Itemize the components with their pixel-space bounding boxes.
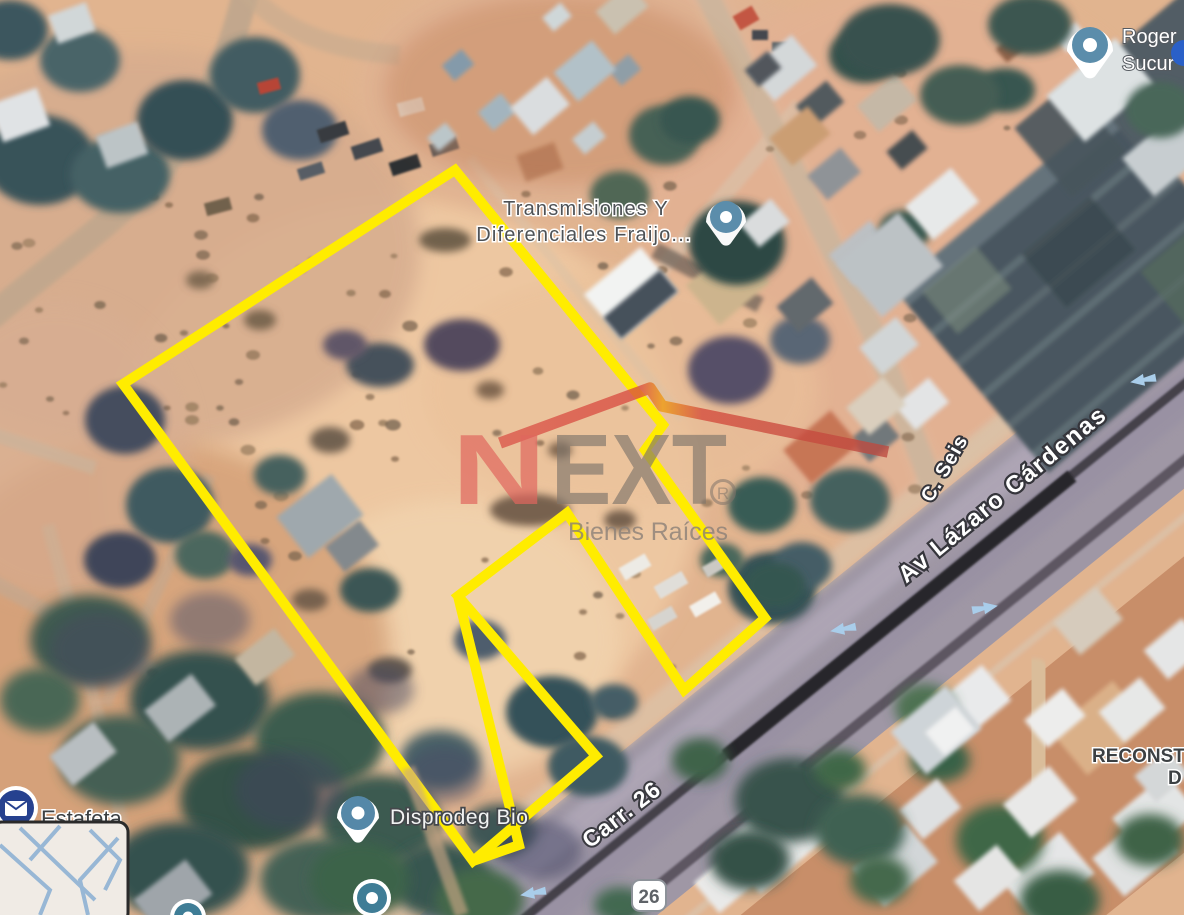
svg-text:D: D bbox=[1168, 768, 1182, 789]
svg-text:Disprodeg Bio: Disprodeg Bio bbox=[390, 806, 528, 829]
svg-text:R: R bbox=[717, 484, 729, 503]
svg-text:N: N bbox=[452, 414, 546, 526]
svg-text:Roger: Roger bbox=[1122, 26, 1177, 48]
svg-text:26: 26 bbox=[638, 887, 659, 908]
svg-text:Bienes Raíces: Bienes Raíces bbox=[568, 518, 728, 546]
svg-text:Transmisiones Y: Transmisiones Y bbox=[503, 198, 669, 220]
svg-text:Diferenciales Fraijo...: Diferenciales Fraijo... bbox=[476, 224, 691, 246]
svg-text:RECONSTR: RECONSTR bbox=[1092, 746, 1184, 767]
svg-text:EXT: EXT bbox=[551, 414, 727, 526]
svg-text:Sucur: Sucur bbox=[1122, 53, 1175, 75]
